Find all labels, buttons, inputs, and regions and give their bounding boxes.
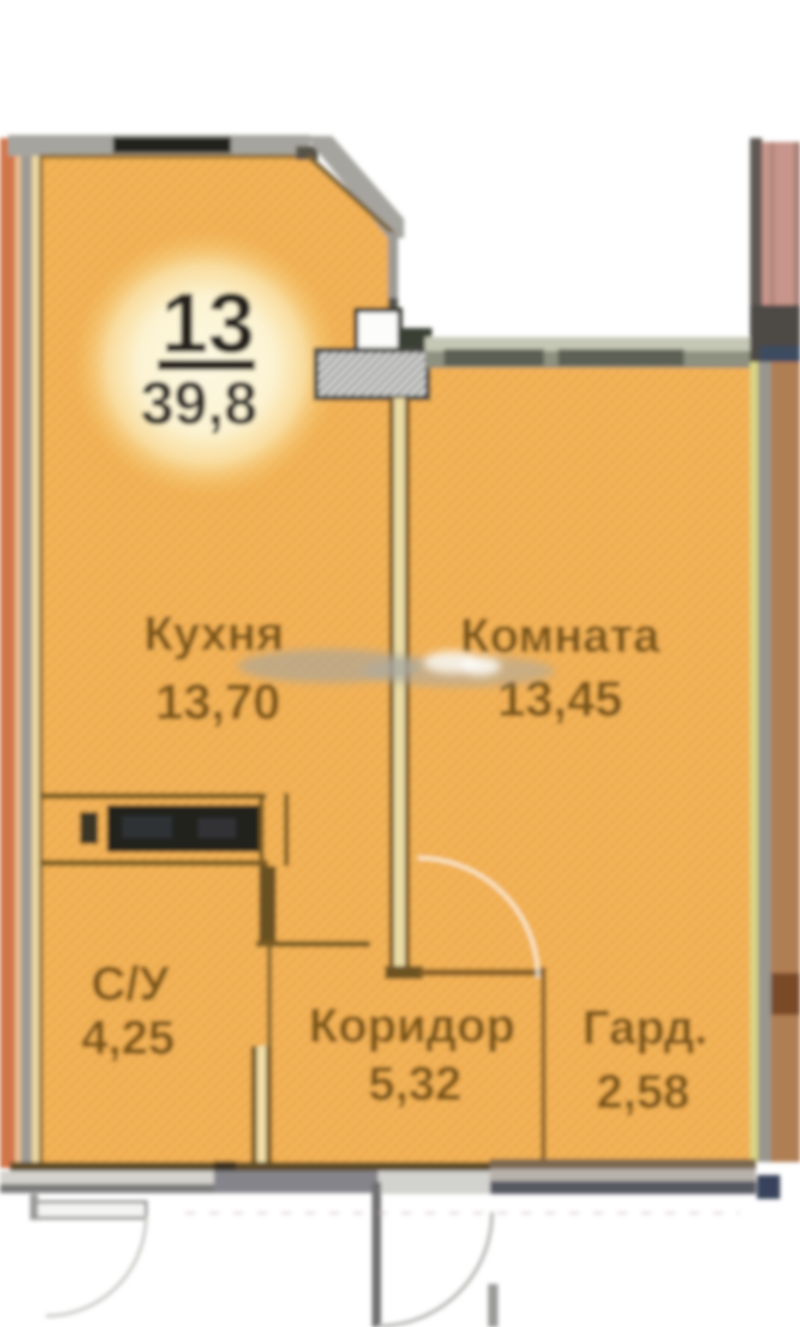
svg-text:39,8: 39,8 xyxy=(141,370,258,437)
svg-text:4,25: 4,25 xyxy=(81,1012,174,1065)
svg-text:13: 13 xyxy=(161,276,254,370)
svg-text:Кухня: Кухня xyxy=(144,608,284,661)
svg-text:13,70: 13,70 xyxy=(155,674,280,730)
svg-text:5,32: 5,32 xyxy=(368,1058,461,1111)
svg-text:Коридор: Коридор xyxy=(309,1000,516,1053)
svg-text:Гард.: Гард. xyxy=(582,1002,707,1055)
svg-text:Комната: Комната xyxy=(460,610,660,663)
svg-text:2,58: 2,58 xyxy=(596,1066,689,1119)
svg-text:С/У: С/У xyxy=(91,958,170,1011)
